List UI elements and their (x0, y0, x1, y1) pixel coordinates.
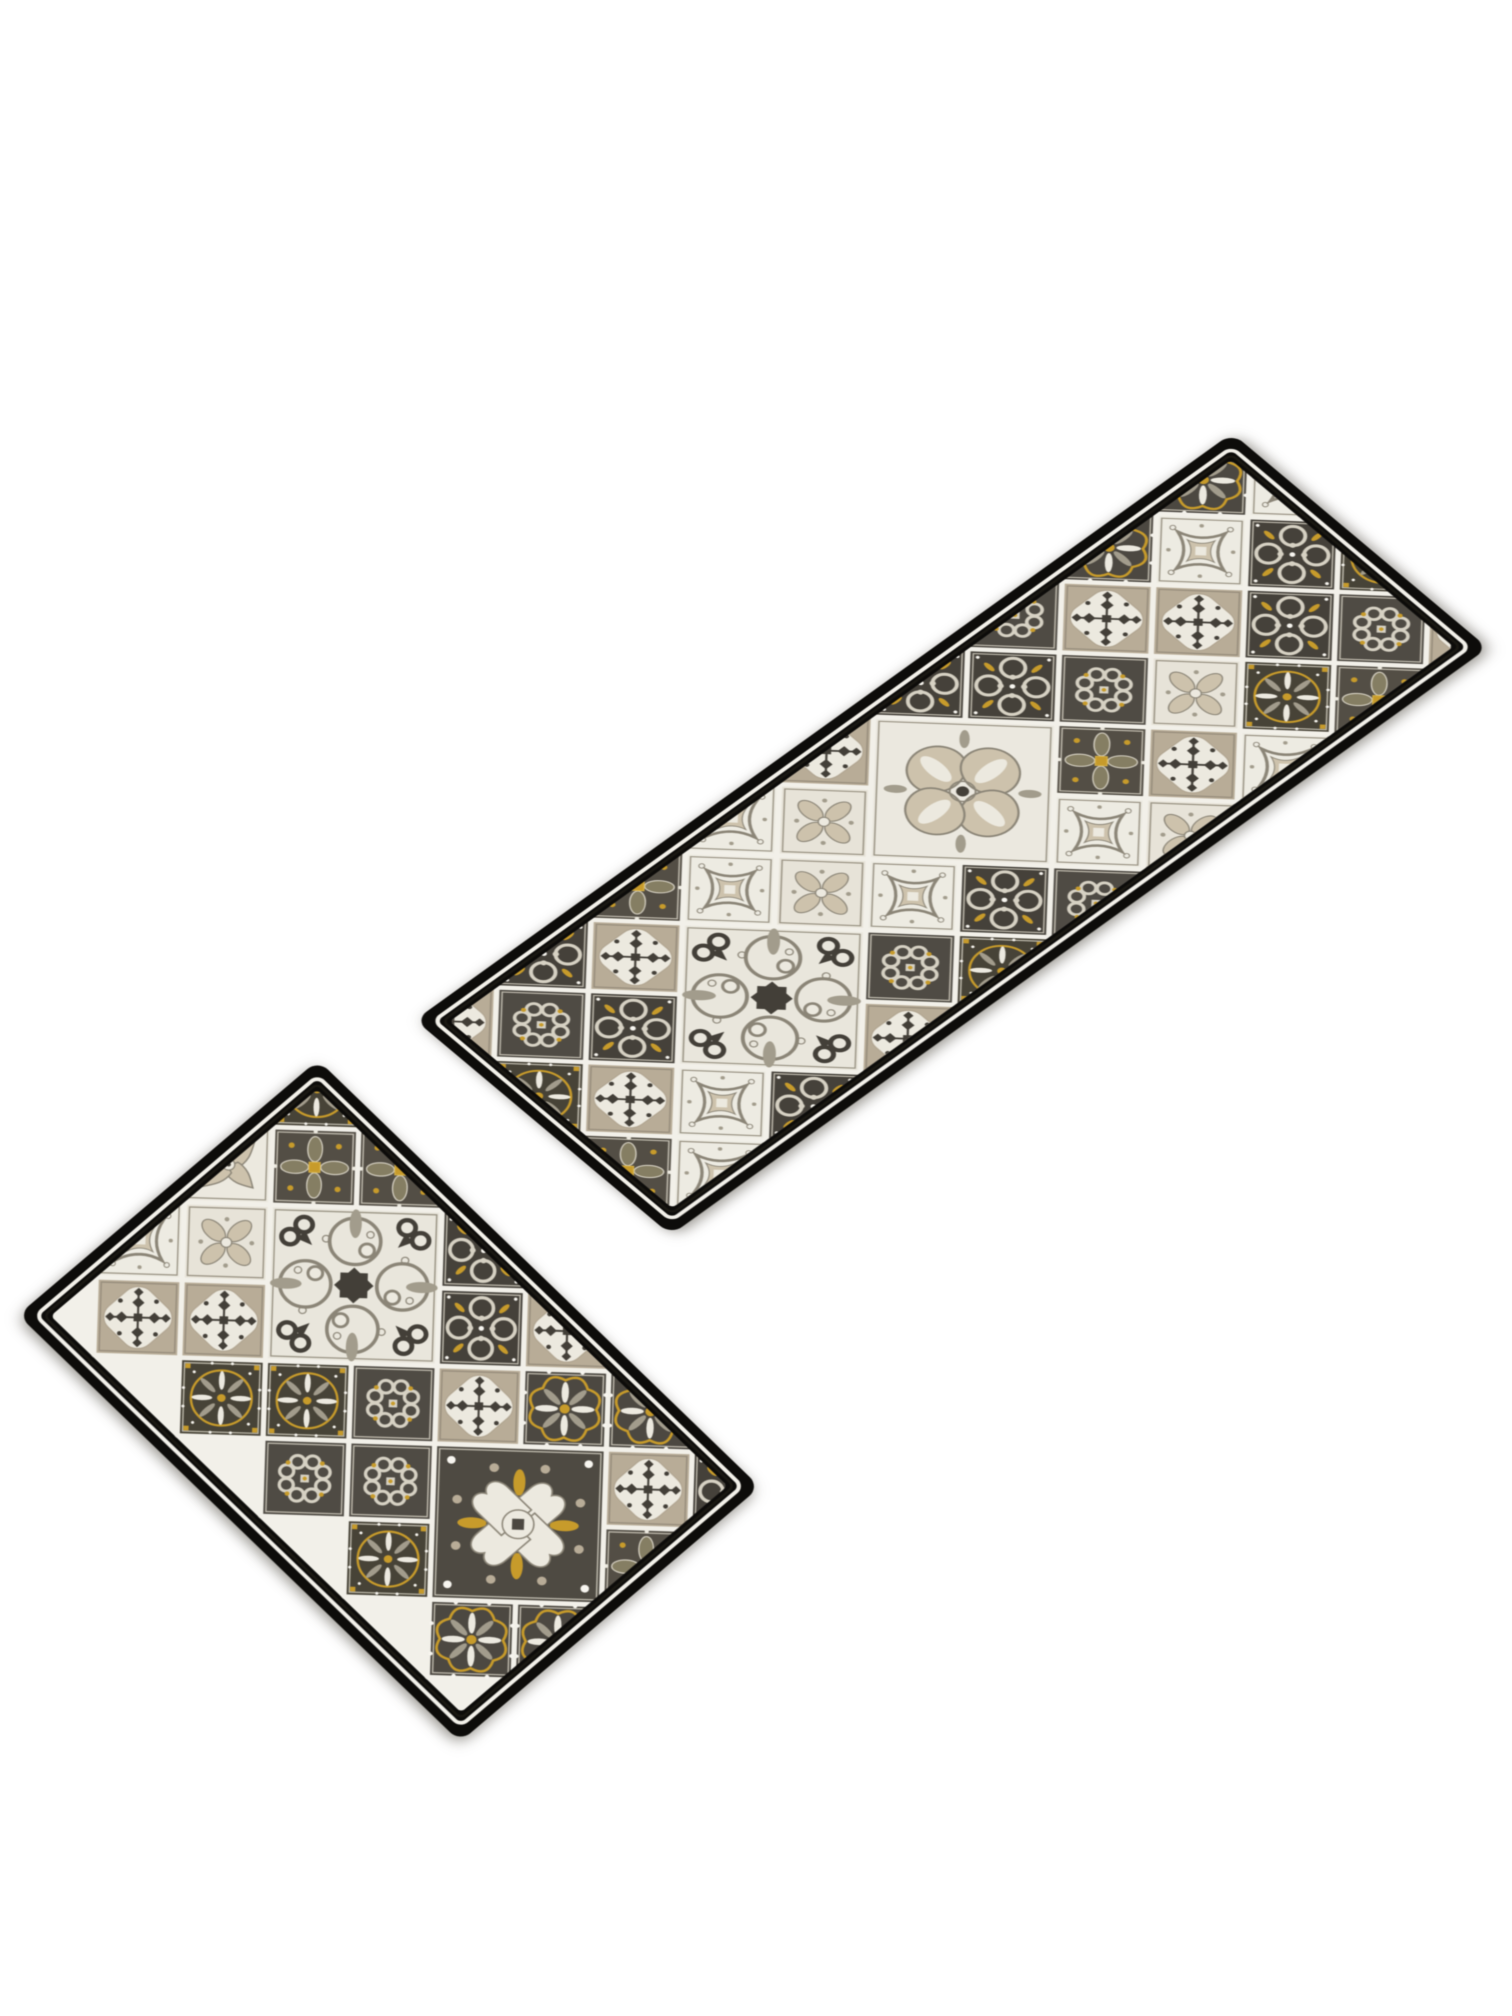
runner-mat-graphic (415, 433, 1488, 1235)
runner-mat (415, 433, 1488, 1235)
product-photo-kitchen-mat-set (0, 0, 1512, 2016)
